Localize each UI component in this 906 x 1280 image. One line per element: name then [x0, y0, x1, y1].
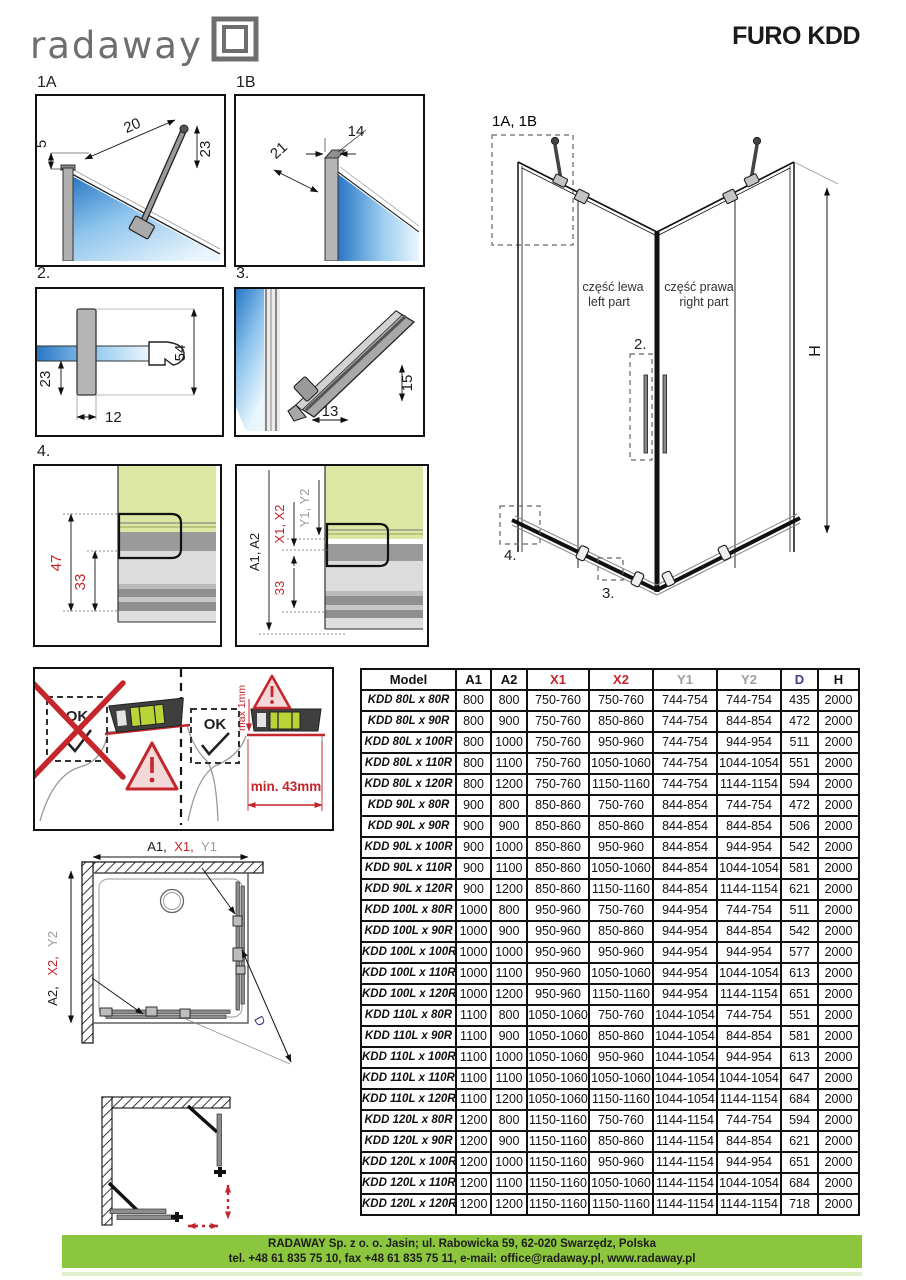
spec-cell: 2000: [818, 1089, 859, 1110]
spec-cell: 744-754: [653, 711, 717, 732]
spec-table-row: KDD 100L x 90R1000900950-960850-860944-9…: [361, 921, 859, 942]
spec-cell: 1200: [491, 1194, 527, 1215]
spec-cell-model: KDD 100L x 90R: [361, 921, 456, 942]
spec-cell: 1044-1054: [653, 1026, 717, 1047]
spec-cell: 1000: [491, 837, 527, 858]
dim-3-15: 15: [399, 375, 416, 392]
spec-cell: 684: [781, 1173, 818, 1194]
spec-cell: 2000: [818, 1110, 859, 1131]
spec-cell: 1200: [456, 1173, 491, 1194]
spec-cell: 2000: [818, 837, 859, 858]
spec-table-row: KDD 100L x 100R10001000950-960950-960944…: [361, 942, 859, 963]
footer-accent-strip: [62, 1272, 862, 1276]
installation-warning-panel: OK OK m: [33, 667, 334, 831]
spec-table-row: KDD 110L x 100R110010001050-1060950-9601…: [361, 1047, 859, 1068]
spec-cell: 1050-1060: [527, 1026, 589, 1047]
spec-cell: 1200: [491, 774, 527, 795]
spec-cell-model: KDD 110L x 120R: [361, 1089, 456, 1110]
spec-col-header-h: H: [818, 669, 859, 690]
spec-table-head-row: ModelA1A2X1X2Y1Y2DH: [361, 669, 859, 690]
page-title: FURO KDD: [732, 22, 860, 51]
spec-cell: 1050-1060: [589, 1173, 653, 1194]
spec-cell: 1050-1060: [589, 858, 653, 879]
spec-table-row: KDD 80L x 120R8001200750-7601150-1160744…: [361, 774, 859, 795]
spec-cell: 800: [456, 690, 491, 711]
brand-logo-icon: [211, 16, 259, 62]
detail-1b-box: 14 21: [234, 94, 425, 267]
spec-cell: 651: [781, 984, 818, 1005]
spec-table-row: KDD 100L x 120R10001200950-9601150-11609…: [361, 984, 859, 1005]
spec-cell: 950-960: [527, 921, 589, 942]
brand-logo-text: radaway: [30, 29, 203, 62]
spec-cell: 594: [781, 774, 818, 795]
spec-cell: 750-760: [589, 1005, 653, 1026]
spec-cell: 800: [491, 795, 527, 816]
brand-logo: radaway: [30, 16, 259, 62]
plan-dim-y1: Y1: [201, 839, 217, 854]
spec-cell: 1044-1054: [717, 963, 781, 984]
spec-cell: 1000: [456, 984, 491, 1005]
spec-cell: 1050-1060: [527, 1047, 589, 1068]
spec-table-row: KDD 120L x 90R12009001150-1160850-860114…: [361, 1131, 859, 1152]
dim-1b-21: 21: [267, 139, 291, 163]
spec-cell: 850-860: [589, 1131, 653, 1152]
spec-cell: 850-860: [527, 879, 589, 900]
dim-1b-14: 14: [348, 123, 365, 140]
spec-table-row: KDD 90L x 90R900900850-860850-860844-854…: [361, 816, 859, 837]
spec-cell: 511: [781, 900, 818, 921]
spec-cell: 1100: [491, 963, 527, 984]
spec-cell-model: KDD 80L x 100R: [361, 732, 456, 753]
spec-cell: 900: [456, 858, 491, 879]
spec-cell: 850-860: [527, 816, 589, 837]
spec-cell: 844-854: [653, 816, 717, 837]
spec-cell: 581: [781, 858, 818, 879]
spec-cell: 844-854: [653, 795, 717, 816]
detail-1a-box: 20 23 5: [35, 94, 226, 267]
spec-table-body: KDD 80L x 80R800800750-760750-760744-754…: [361, 690, 859, 1215]
spec-cell: 1100: [491, 1173, 527, 1194]
spec-table-row: KDD 120L x 80R12008001150-1160750-760114…: [361, 1110, 859, 1131]
spec-cell: 1200: [491, 879, 527, 900]
right-part-label-en: right part: [679, 295, 729, 309]
spec-cell: 1144-1154: [653, 1173, 717, 1194]
plan-dim-a2: A2,: [45, 986, 60, 1006]
plan-dim-d: D: [251, 1013, 269, 1028]
spec-table-row: KDD 110L x 110R110011001050-10601050-106…: [361, 1068, 859, 1089]
spec-cell: 944-954: [717, 837, 781, 858]
spec-cell: 1050-1060: [589, 753, 653, 774]
spec-cell: 950-960: [589, 1152, 653, 1173]
spec-cell: 1000: [456, 921, 491, 942]
spec-cell: 944-954: [653, 921, 717, 942]
spec-cell: 2000: [818, 1068, 859, 1089]
spec-cell: 1100: [456, 1047, 491, 1068]
spec-cell: 900: [491, 711, 527, 732]
detail-4-label: 4.: [37, 443, 50, 461]
spec-cell: 800: [456, 774, 491, 795]
detail-4-left-box: 47 33: [33, 464, 222, 647]
spec-cell: 1000: [456, 942, 491, 963]
spec-cell: 1200: [456, 1131, 491, 1152]
spec-table-row: KDD 120L x 110R120011001150-11601050-106…: [361, 1173, 859, 1194]
spec-cell-model: KDD 100L x 110R: [361, 963, 456, 984]
spec-cell: 1100: [456, 1026, 491, 1047]
spec-cell: 1144-1154: [653, 1194, 717, 1215]
spec-cell-model: KDD 90L x 110R: [361, 858, 456, 879]
footer-address: RADAWAY Sp. z o. o. Jasin; ul. Rabowicka…: [268, 1237, 656, 1252]
spec-cell: 435: [781, 690, 818, 711]
spec-cell: 1100: [456, 1005, 491, 1026]
spec-cell-model: KDD 110L x 90R: [361, 1026, 456, 1047]
spec-cell: 1144-1154: [653, 1110, 717, 1131]
spec-table-row: KDD 80L x 110R8001100750-7601050-1060744…: [361, 753, 859, 774]
spec-cell: 744-754: [653, 690, 717, 711]
stabilizer-bar-left: [551, 137, 589, 204]
spirit-level-flat-icon: [251, 709, 321, 731]
spec-table-row: KDD 100L x 80R1000800950-960750-760944-9…: [361, 900, 859, 921]
spec-cell: 750-760: [589, 900, 653, 921]
spec-cell-model: KDD 100L x 80R: [361, 900, 456, 921]
spec-cell-model: KDD 100L x 100R: [361, 942, 456, 963]
spec-cell: 844-854: [653, 837, 717, 858]
spec-cell: 844-854: [717, 1026, 781, 1047]
spec-cell: 577: [781, 942, 818, 963]
spec-cell: 581: [781, 1026, 818, 1047]
spec-cell-model: KDD 90L x 80R: [361, 795, 456, 816]
detail-3-box: 15 13: [234, 287, 425, 437]
spec-cell: 744-754: [717, 1005, 781, 1026]
spec-cell-model: KDD 90L x 90R: [361, 816, 456, 837]
spec-cell-model: KDD 90L x 120R: [361, 879, 456, 900]
spec-cell: 844-854: [717, 711, 781, 732]
spec-cell: 850-860: [527, 858, 589, 879]
spec-cell: 900: [456, 879, 491, 900]
iso-callout-2: 2.: [634, 336, 647, 353]
spec-cell: 2000: [818, 900, 859, 921]
spec-cell: 2000: [818, 963, 859, 984]
spec-cell: 621: [781, 879, 818, 900]
spec-cell: 1150-1160: [527, 1110, 589, 1131]
dim-3-13: 13: [322, 403, 339, 420]
spec-cell: 744-754: [653, 732, 717, 753]
spec-cell: 1150-1160: [527, 1131, 589, 1152]
spec-col-header-x2: X2: [589, 669, 653, 690]
spec-cell: 2000: [818, 1026, 859, 1047]
spec-cell-model: KDD 110L x 110R: [361, 1068, 456, 1089]
spec-cell: 944-954: [717, 732, 781, 753]
spec-cell: 850-860: [527, 837, 589, 858]
dim-2-54: 54: [172, 345, 189, 362]
spec-cell: 2000: [818, 774, 859, 795]
spec-cell: 1044-1054: [653, 1089, 717, 1110]
spec-cell-model: KDD 90L x 100R: [361, 837, 456, 858]
spec-cell: 1150-1160: [527, 1152, 589, 1173]
spec-cell: 900: [491, 816, 527, 837]
spec-cell: 1144-1154: [653, 1131, 717, 1152]
spec-table-row: KDD 90L x 110R9001100850-8601050-1060844…: [361, 858, 859, 879]
spec-cell: 2000: [818, 1005, 859, 1026]
spec-cell: 944-954: [653, 942, 717, 963]
spec-cell: 1044-1054: [653, 1047, 717, 1068]
spec-cell: 800: [456, 753, 491, 774]
spec-cell: 613: [781, 963, 818, 984]
spec-cell: 1044-1054: [717, 1068, 781, 1089]
iso-callout-4: 4.: [504, 547, 517, 564]
spec-cell: 900: [491, 921, 527, 942]
spec-cell: 1150-1160: [589, 984, 653, 1005]
spec-cell: 1050-1060: [527, 1068, 589, 1089]
spec-cell: 944-954: [717, 942, 781, 963]
spec-cell: 2000: [818, 1194, 859, 1215]
spec-cell: 850-860: [589, 711, 653, 732]
spec-cell: 900: [491, 1131, 527, 1152]
spec-cell: 744-754: [717, 900, 781, 921]
spec-cell: 1150-1160: [589, 1089, 653, 1110]
spec-cell: 1044-1054: [653, 1005, 717, 1026]
spec-cell: 2000: [818, 816, 859, 837]
left-part-label-en: left part: [588, 295, 630, 309]
spec-cell: 511: [781, 732, 818, 753]
iso-dim-h: H: [807, 345, 824, 357]
spec-cell-model: KDD 110L x 100R: [361, 1047, 456, 1068]
dim-2-12: 12: [105, 409, 122, 426]
spec-cell: 850-860: [589, 816, 653, 837]
spec-col-header-a2: A2: [491, 669, 527, 690]
spec-table-row: KDD 80L x 80R800800750-760750-760744-754…: [361, 690, 859, 711]
spec-cell-model: KDD 120L x 80R: [361, 1110, 456, 1131]
dim-1a-20: 20: [121, 115, 143, 137]
spec-cell: 900: [456, 795, 491, 816]
spec-cell-model: KDD 120L x 90R: [361, 1131, 456, 1152]
spec-cell: 1144-1154: [717, 774, 781, 795]
detail-3-label: 3.: [236, 265, 249, 283]
spec-cell: 2000: [818, 1047, 859, 1068]
spec-cell: 1044-1054: [717, 753, 781, 774]
spec-cell: 2000: [818, 1152, 859, 1173]
spec-cell: 744-754: [717, 795, 781, 816]
footer-contact: tel. +48 61 835 75 10, fax +48 61 835 75…: [229, 1252, 696, 1267]
spec-table-row: KDD 100L x 110R10001100950-9601050-10609…: [361, 963, 859, 984]
spec-cell-model: KDD 120L x 120R: [361, 1194, 456, 1215]
spec-cell: 594: [781, 1110, 818, 1131]
dim-1a-5: 5: [37, 140, 50, 148]
plan-dim-y2: Y2: [45, 931, 60, 947]
spec-cell: 1050-1060: [527, 1089, 589, 1110]
max-gap-label: max 1mm: [236, 685, 248, 731]
spec-cell: 1144-1154: [717, 879, 781, 900]
spec-cell: 2000: [818, 690, 859, 711]
spec-cell: 744-754: [653, 774, 717, 795]
spec-cell: 800: [491, 900, 527, 921]
plan-dim-a1: A1,: [147, 839, 167, 854]
spec-cell: 2000: [818, 879, 859, 900]
spec-cell: 472: [781, 795, 818, 816]
detail-2-box: 54 23 12: [35, 287, 224, 437]
detail-2-label: 2.: [37, 265, 50, 283]
spec-col-header-d: D: [781, 669, 818, 690]
spec-cell: 1000: [491, 732, 527, 753]
spec-cell: 744-754: [653, 753, 717, 774]
spec-cell: 750-760: [527, 690, 589, 711]
spec-cell: 950-960: [527, 942, 589, 963]
spec-cell-model: KDD 110L x 80R: [361, 1005, 456, 1026]
spec-cell: 844-854: [653, 879, 717, 900]
spec-cell: 850-860: [589, 1026, 653, 1047]
spec-cell: 1044-1054: [717, 1173, 781, 1194]
spec-cell: 750-760: [589, 690, 653, 711]
spec-cell: 800: [456, 732, 491, 753]
plan-bottom-door-profile: [100, 1007, 230, 1018]
spec-cell: 800: [491, 690, 527, 711]
detail-1a-drawing: 20 23 5: [37, 96, 220, 261]
spec-cell-model: KDD 120L x 110R: [361, 1173, 456, 1194]
spec-cell: 1100: [456, 1068, 491, 1089]
ok-label: OK: [204, 716, 227, 733]
detail-3-drawing: 15 13: [236, 289, 419, 431]
spec-cell: 900: [456, 816, 491, 837]
right-part-label-pl: część prawa: [664, 280, 734, 294]
detail-1b-drawing: 14 21: [236, 96, 419, 261]
spec-cell: 1100: [491, 858, 527, 879]
spec-cell: 2000: [818, 753, 859, 774]
spec-table-row: KDD 80L x 100R8001000750-760950-960744-7…: [361, 732, 859, 753]
spec-cell: 950-960: [527, 963, 589, 984]
spec-cell: 750-760: [589, 795, 653, 816]
spec-cell: 944-954: [653, 963, 717, 984]
spec-cell: 506: [781, 816, 818, 837]
spec-cell: 542: [781, 837, 818, 858]
spec-cell: 1100: [491, 1068, 527, 1089]
spec-cell: 1200: [491, 1089, 527, 1110]
spec-cell: 844-854: [653, 858, 717, 879]
footer-bar: RADAWAY Sp. z o. o. Jasin; ul. Rabowicka…: [62, 1235, 862, 1268]
dim-4-y1y2: Y1, Y2: [297, 489, 312, 528]
spec-cell: 850-860: [589, 921, 653, 942]
spec-cell: 950-960: [589, 1047, 653, 1068]
spec-cell: 718: [781, 1194, 818, 1215]
spec-cell: 944-954: [717, 1152, 781, 1173]
spec-cell: 944-954: [653, 900, 717, 921]
spec-cell: 844-854: [717, 921, 781, 942]
spec-cell: 844-854: [717, 1131, 781, 1152]
spec-cell: 1200: [456, 1194, 491, 1215]
stabilizer-bar-right: [722, 137, 760, 204]
spec-cell: 551: [781, 753, 818, 774]
spec-cell: 1200: [491, 984, 527, 1005]
dim-4-a1a2: A1, A2: [247, 533, 262, 571]
spec-table-row: KDD 90L x 120R9001200850-8601150-1160844…: [361, 879, 859, 900]
spec-cell: 1144-1154: [717, 984, 781, 1005]
iso-callout-3: 3.: [602, 585, 615, 602]
spec-cell: 750-760: [527, 711, 589, 732]
spec-cell: 1000: [491, 1047, 527, 1068]
spec-cell: 621: [781, 1131, 818, 1152]
dim-2-23: 23: [37, 371, 54, 388]
spec-cell: 950-960: [589, 942, 653, 963]
spec-cell: 2000: [818, 984, 859, 1005]
spec-cell: 800: [491, 1005, 527, 1026]
spec-cell: 2000: [818, 795, 859, 816]
spec-col-header-model: Model: [361, 669, 456, 690]
dim-4-33-right: 33: [272, 581, 287, 595]
warning-triangle-icon: [254, 676, 290, 708]
spec-cell: 1044-1054: [717, 858, 781, 879]
spec-col-header-x1: X1: [527, 669, 589, 690]
spec-cell: 2000: [818, 942, 859, 963]
spec-cell: 1000: [491, 1152, 527, 1173]
page: radaway FURO KDD 1A 20 23 5: [0, 0, 906, 1280]
plan-dim-x2: X2,: [45, 956, 60, 976]
detail-4-left-drawing: 47 33: [35, 466, 216, 641]
spec-cell: 950-960: [527, 984, 589, 1005]
dim-4-47: 47: [48, 555, 65, 572]
spec-cell: 900: [491, 1026, 527, 1047]
warning-triangle-icon: [127, 743, 177, 789]
spec-cell-model: KDD 80L x 80R: [361, 690, 456, 711]
spec-table-row: KDD 90L x 80R900800850-860750-760844-854…: [361, 795, 859, 816]
spec-cell: 750-760: [527, 774, 589, 795]
spec-cell: 900: [456, 837, 491, 858]
spec-cell-model: KDD 80L x 110R: [361, 753, 456, 774]
spec-cell: 1150-1160: [527, 1173, 589, 1194]
detail-1b-label: 1B: [236, 74, 256, 92]
spec-cell: 1000: [491, 942, 527, 963]
spec-cell: 2000: [818, 1173, 859, 1194]
spec-cell: 944-954: [717, 1047, 781, 1068]
dim-1a-23: 23: [197, 141, 214, 158]
spec-cell: 944-954: [653, 984, 717, 1005]
spec-cell: 1150-1160: [589, 879, 653, 900]
spec-cell: 1200: [456, 1110, 491, 1131]
spec-cell: 744-754: [717, 690, 781, 711]
spec-cell: 2000: [818, 732, 859, 753]
spec-cell: 472: [781, 711, 818, 732]
spec-cell: 1000: [456, 963, 491, 984]
spec-cell: 1144-1154: [653, 1152, 717, 1173]
spec-cell: 1200: [456, 1152, 491, 1173]
door-opening-drawing: [95, 1095, 260, 1235]
spec-cell: 1000: [456, 900, 491, 921]
spec-table-row: KDD 120L x 120R120012001150-11601150-116…: [361, 1194, 859, 1215]
spec-cell: 950-960: [527, 900, 589, 921]
spec-cell-model: KDD 80L x 120R: [361, 774, 456, 795]
dim-4-x1x2: X1, X2: [272, 504, 287, 543]
spec-cell: 844-854: [717, 816, 781, 837]
spec-cell: 800: [456, 711, 491, 732]
plan-dim-x1: X1,: [174, 839, 194, 854]
detail-1a-label: 1A: [37, 74, 57, 92]
dim-4-33-left: 33: [72, 574, 89, 591]
plan-right-door-profile: [233, 882, 245, 1010]
spec-cell: 800: [491, 1110, 527, 1131]
spec-cell: 647: [781, 1068, 818, 1089]
spec-cell: 613: [781, 1047, 818, 1068]
spec-col-header-a1: A1: [456, 669, 491, 690]
spec-cell-model: KDD 120L x 100R: [361, 1152, 456, 1173]
spec-cell: 1144-1154: [717, 1194, 781, 1215]
spec-col-header-y1: Y1: [653, 669, 717, 690]
spec-table-row: KDD 80L x 90R800900750-760850-860744-754…: [361, 711, 859, 732]
spec-table-row: KDD 110L x 90R11009001050-1060850-860104…: [361, 1026, 859, 1047]
installation-warning-drawing: OK OK m: [35, 669, 328, 825]
spec-cell: 1150-1160: [589, 1194, 653, 1215]
spec-cell: 2000: [818, 858, 859, 879]
spec-table-row: KDD 110L x 120R110012001050-10601150-116…: [361, 1089, 859, 1110]
spec-table: ModelA1A2X1X2Y1Y2DH KDD 80L x 80R8008007…: [360, 668, 860, 1216]
spec-table-row: KDD 120L x 100R120010001150-1160950-9601…: [361, 1152, 859, 1173]
spec-table-row: KDD 110L x 80R11008001050-1060750-760104…: [361, 1005, 859, 1026]
